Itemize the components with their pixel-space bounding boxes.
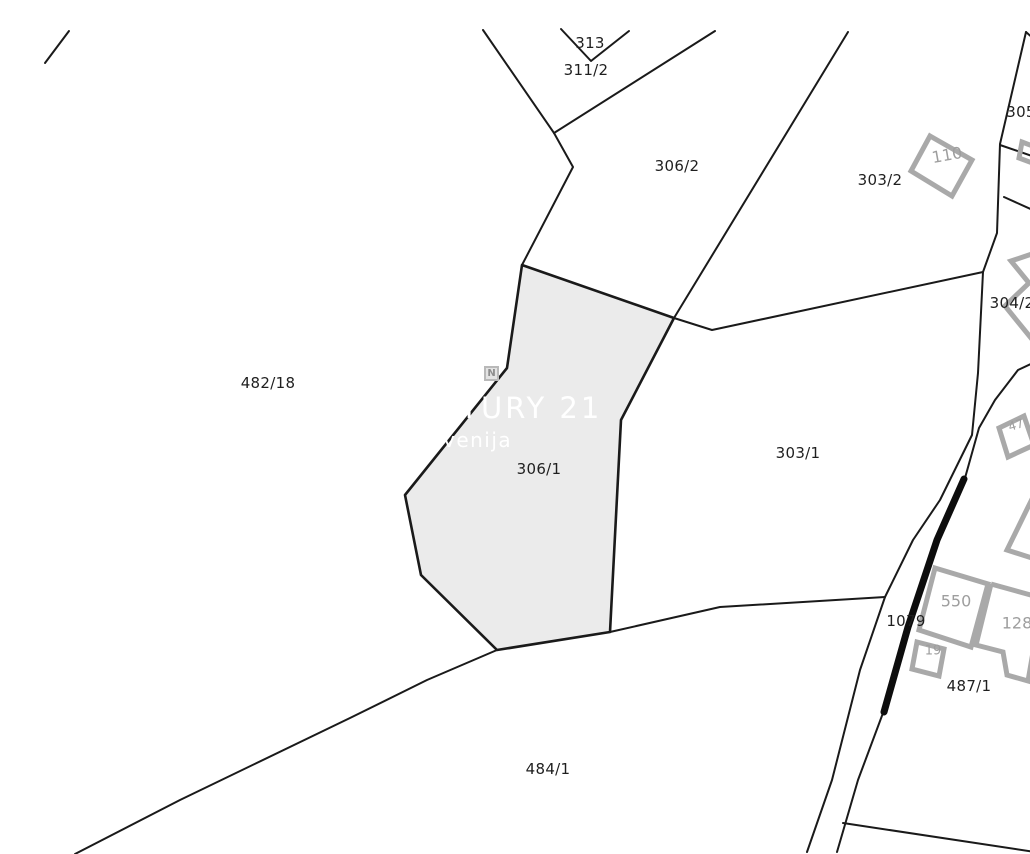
boundary-305-corner-arm xyxy=(1026,32,1030,40)
parcel-label-311-2: 311/2 xyxy=(564,61,609,79)
parcel-label-487-1: 487/1 xyxy=(947,677,992,695)
parcel-label-303-2: 303/2 xyxy=(858,171,903,189)
boundary-303-484 xyxy=(610,597,885,632)
parcel-label-303-1: 303/1 xyxy=(776,444,821,462)
parcel-306-1-shape[interactable] xyxy=(405,265,674,650)
map-canvas xyxy=(0,0,1030,854)
building-110-shape xyxy=(911,136,972,196)
boundary-road-left-edge xyxy=(807,32,1026,852)
boundary-road-bottom-fork xyxy=(843,823,1030,852)
parcel-label-306-1: 306/1 xyxy=(517,460,562,478)
parcel-label-482-18: 482/18 xyxy=(241,374,296,392)
parcel-label-484-1: 484/1 xyxy=(526,760,571,778)
parcel-label-1079: 1079 xyxy=(886,612,925,630)
boundary-305-south xyxy=(1000,145,1030,157)
boundary-top-left-slash xyxy=(45,31,69,63)
building-label-128: 128 xyxy=(1002,614,1030,633)
century21-logo-icon: N xyxy=(484,366,499,381)
boundary-306-303-diagonal xyxy=(674,32,848,318)
watermark-brand: CENTURY 21 xyxy=(391,391,602,425)
boundary-304-north xyxy=(1004,197,1030,211)
boundary-303-1-top xyxy=(674,272,983,330)
parcel-label-313: 313 xyxy=(575,34,605,52)
boundary-482-306 xyxy=(522,133,573,265)
building-label-19: 19 xyxy=(925,644,942,659)
watermark-region: Slovenija xyxy=(408,428,512,452)
building-128-upper-corner xyxy=(1007,497,1030,560)
building-label-550: 550 xyxy=(941,592,972,611)
boundary-484-southwest xyxy=(75,650,497,854)
parcel-label-304-2: 304/2 xyxy=(990,294,1030,312)
building-128-top-edge xyxy=(991,584,1030,597)
boundary-311-left xyxy=(483,30,554,133)
parcel-label-306-2: 306/2 xyxy=(655,157,700,175)
parcel-label-305: 305 xyxy=(1006,103,1030,121)
cadastral-map: N CENTURY 21 Slovenija 313 311/2 306/2 3… xyxy=(0,0,1030,854)
